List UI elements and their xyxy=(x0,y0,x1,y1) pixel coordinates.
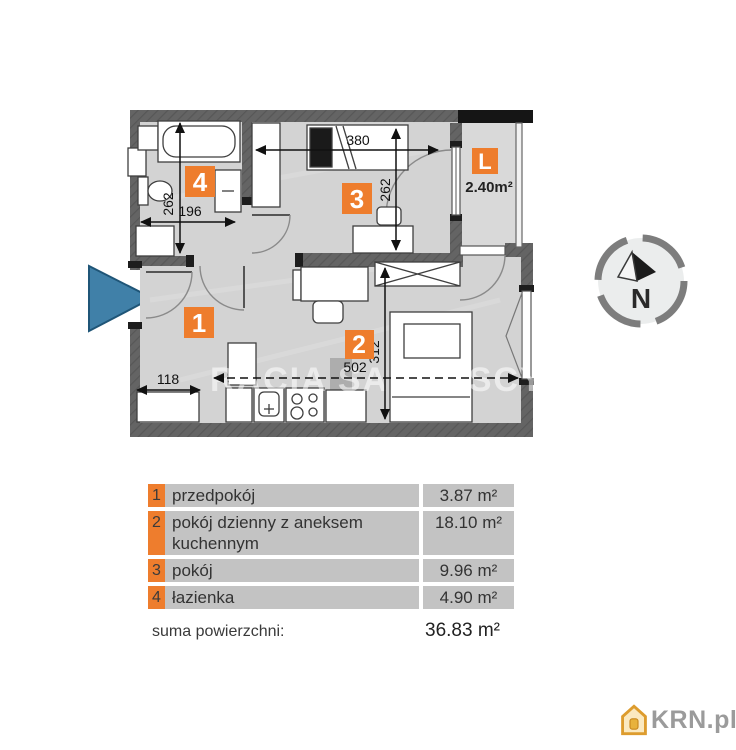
room-name: łazienka xyxy=(165,586,419,609)
shoe-cabinet xyxy=(137,392,199,422)
washer xyxy=(136,226,174,256)
svg-text:118: 118 xyxy=(157,371,180,387)
room-badge-2: 2 xyxy=(352,331,366,359)
room-badge-loggia: L xyxy=(478,149,491,174)
legend-badge-2: 2 xyxy=(148,511,165,555)
room-name: pokój xyxy=(165,559,419,582)
legend-row: 1 przedpokój 3.87 m² xyxy=(148,484,514,507)
room-area: 9.96 m² xyxy=(423,559,514,582)
legend-row: 4 łazienka 4.90 m² xyxy=(148,586,514,609)
legend-row: 2 pokój dzienny z aneksem kuchennym 18.1… xyxy=(148,511,514,555)
svg-text:262: 262 xyxy=(160,192,176,216)
svg-text:502: 502 xyxy=(343,359,367,375)
legend-table: 1 przedpokój 3.87 m² 2 pokój dzienny z a… xyxy=(148,484,514,642)
legend-badge-1: 1 xyxy=(148,484,165,507)
toilet-tank xyxy=(138,177,148,205)
svg-text:262: 262 xyxy=(377,178,393,202)
room-area: 18.10 m² xyxy=(423,511,514,555)
loggia-area-label: 2.40m² xyxy=(465,179,513,196)
floor-plan: RACIA SADURSCY 380 262 262 196 118 312 5… xyxy=(80,95,545,445)
desk-room3 xyxy=(353,226,413,253)
shaft xyxy=(128,148,146,176)
room-badge-4: 4 xyxy=(193,167,208,197)
watermark-text: RACIA SADURSCY xyxy=(210,361,545,399)
svg-text:196: 196 xyxy=(178,203,202,219)
total-value: 36.83 m² xyxy=(411,620,514,642)
legend-badge-4: 4 xyxy=(148,586,165,609)
chair-room3 xyxy=(377,207,401,225)
total-row: suma powierzchni: 36.83 m² xyxy=(148,620,514,642)
svg-text:380: 380 xyxy=(346,132,370,148)
compass-north-label: N xyxy=(631,283,651,314)
desk-room2 xyxy=(301,267,368,301)
compass: N xyxy=(590,230,692,332)
krn-logo-text: KRN.pl xyxy=(651,706,736,735)
krn-logo: KRN.pl xyxy=(620,704,736,736)
room-area: 3.87 m² xyxy=(423,484,514,507)
chair-room2 xyxy=(313,301,343,323)
room-name: przedpokój xyxy=(165,484,419,507)
room-area: 4.90 m² xyxy=(423,586,514,609)
wardrobe-room3 xyxy=(252,123,280,207)
pillow-room2 xyxy=(404,324,460,358)
room-badge-1: 1 xyxy=(192,308,206,338)
house-icon xyxy=(620,704,648,736)
total-label: suma powierzchni: xyxy=(148,623,411,641)
room-name: pokój dzienny z aneksem kuchennym xyxy=(165,511,419,555)
legend-row: 3 pokój 9.96 m² xyxy=(148,559,514,582)
pillow xyxy=(310,128,332,167)
legend-badge-3: 3 xyxy=(148,559,165,582)
room-badge-3: 3 xyxy=(350,184,364,214)
